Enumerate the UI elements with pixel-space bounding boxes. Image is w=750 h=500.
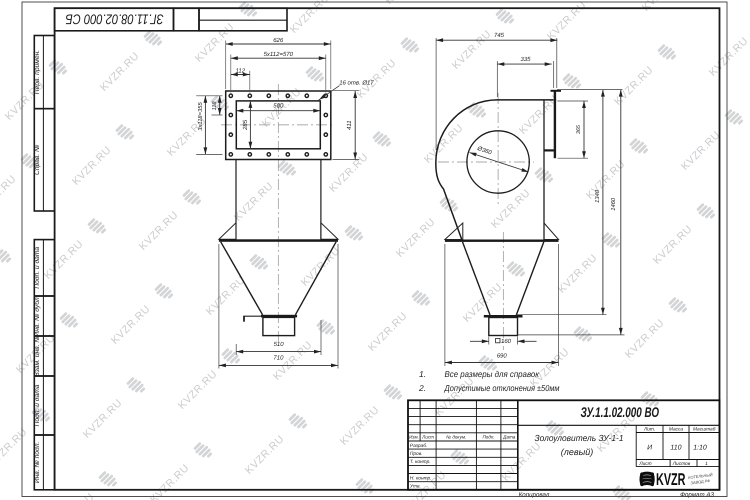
svg-text:Разраб.: Разраб. [410,443,427,449]
svg-text:690: 690 [497,353,508,360]
svg-text:Масштаб: Масштаб [693,426,716,432]
svg-text:626: 626 [273,37,284,44]
svg-text:ЗУ.1.1.02.000 ВО: ЗУ.1.1.02.000 ВО [581,404,660,420]
svg-text:Н. контр.: Н. контр. [410,475,432,481]
svg-text:1:10: 1:10 [693,444,707,451]
svg-text:KVZR: KVZR [656,470,686,489]
svg-text:Все размеры для справок: Все размеры для справок [445,369,540,379]
svg-text:Т. контр.: Т. контр. [410,459,431,465]
svg-text:Подп. и дата: Подп. и дата [34,247,41,289]
svg-text:745: 745 [494,32,505,39]
svg-text:1: 1 [705,461,708,467]
svg-text:1.: 1. [419,369,426,379]
svg-text:Подп. и дата: Подп. и дата [34,384,41,426]
svg-text:Допустимые отклонения ±50мм: Допустимые отклонения ±50мм [444,383,560,393]
svg-text:Перв. примен.: Перв. примен. [34,50,41,95]
svg-text:Масса: Масса [669,426,684,432]
svg-text:110: 110 [670,444,681,451]
svg-text:Изм.: Изм. [409,435,419,440]
svg-text:ЗГ.11.08.02.000 СБ: ЗГ.11.08.02.000 СБ [66,11,164,27]
svg-text:411: 411 [346,120,353,130]
svg-text:160: 160 [501,338,512,345]
svg-text:Инв. № подл.: Инв. № подл. [34,442,41,484]
svg-text:2.: 2. [418,383,426,393]
svg-text:365: 365 [576,124,582,134]
svg-text:№ докум.: № докум. [446,435,466,440]
svg-text:Лит.: Лит. [643,426,655,432]
svg-text:1460: 1460 [610,197,617,211]
svg-text:Листов: Листов [672,461,691,467]
svg-text:3х118=355: 3х118=355 [197,102,204,131]
svg-text:Подп.: Подп. [482,435,494,440]
svg-text:16 отв. Ø17: 16 отв. Ø17 [339,79,374,86]
svg-text:Золоуловитель ЗУ-1-1: Золоуловитель ЗУ-1-1 [535,433,624,443]
svg-text:335: 335 [520,56,531,63]
svg-text:Лист: Лист [638,461,651,467]
svg-text:Утв.: Утв. [410,484,421,490]
svg-text:(левый): (левый) [561,447,593,457]
svg-text:Лист: Лист [421,435,434,440]
svg-text:Взам. инв. №: Взам. инв. № [34,335,41,376]
svg-text:112: 112 [236,67,246,74]
svg-text:Пров.: Пров. [410,451,423,457]
svg-text:118: 118 [212,101,218,111]
svg-text:5х112=570: 5х112=570 [264,51,294,58]
svg-text:510: 510 [274,341,285,348]
svg-text:500: 500 [273,102,284,109]
svg-text:1340: 1340 [594,189,601,203]
svg-text:Дата: Дата [502,435,516,440]
svg-text:Формат А3: Формат А3 [680,491,714,498]
svg-text:Инв. № дубл.: Инв. № дубл. [34,295,41,336]
svg-text:Справ. №: Справ. № [34,145,41,175]
svg-text:710: 710 [273,355,284,362]
svg-text:285: 285 [242,119,249,131]
svg-text:Копировал: Копировал [519,491,550,498]
